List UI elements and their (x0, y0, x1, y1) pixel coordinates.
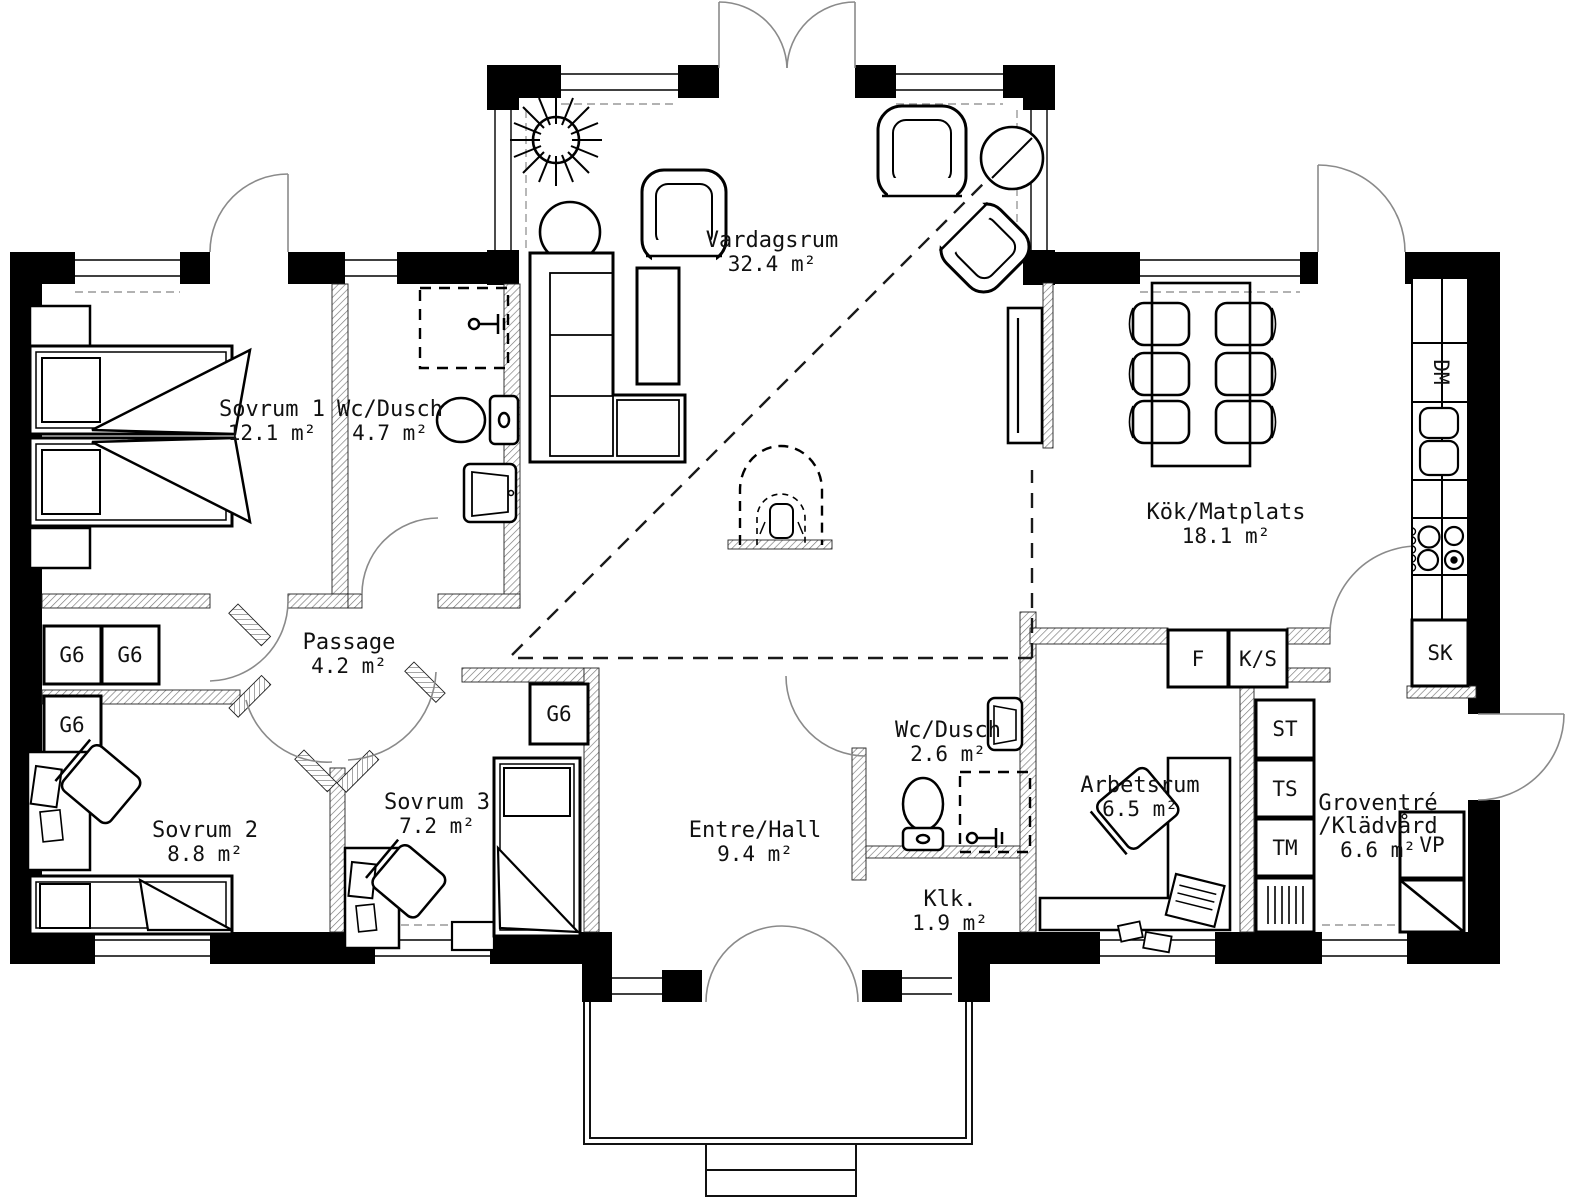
room-area-vardagsrum: 32.4 m² (728, 252, 817, 276)
room-area-wc-dusch2: 2.6 m² (910, 742, 986, 766)
room-area-klk: 1.9 m² (912, 911, 988, 935)
desk-item (1118, 921, 1143, 941)
window (612, 971, 662, 1001)
interior-door-arc (362, 518, 438, 594)
room-area-sovrum3: 7.2 m² (399, 814, 475, 838)
interior-door-arc (210, 601, 288, 681)
window (488, 110, 518, 250)
kitchen-counter (1412, 278, 1468, 620)
toilet (437, 396, 518, 444)
room-area-wc-dusch1: 4.7 m² (352, 421, 428, 445)
sink (464, 464, 516, 522)
window (345, 253, 397, 283)
window (95, 933, 210, 963)
room-label-wc-dusch2: Wc/Dusch (895, 718, 1001, 743)
st-label: ST (1272, 717, 1298, 741)
shower (420, 288, 508, 368)
room-label-klk: Klk. (924, 887, 977, 912)
f-label: F (1192, 647, 1205, 671)
window (75, 253, 180, 283)
vp-lower-unit (1400, 880, 1464, 932)
coffee-table (637, 268, 679, 384)
toilet (903, 778, 943, 850)
entrance-door-arc (782, 926, 858, 1002)
kok-furniture (1008, 278, 1468, 687)
room-area-entre: 9.4 m² (717, 842, 793, 866)
g6-label: G6 (546, 702, 571, 726)
radiator-cabinet (1256, 878, 1314, 932)
room-label-wc-dusch1: Wc/Dusch (337, 397, 443, 422)
window (1140, 253, 1300, 283)
vp-label: VP (1419, 833, 1444, 857)
armchair (878, 106, 966, 204)
bed (30, 876, 232, 934)
nightstand (30, 528, 90, 568)
interior-door-arc (786, 676, 866, 756)
room-label-kok: Kök/Matplats (1147, 500, 1306, 525)
french-door-arc (719, 2, 787, 68)
nightstand (30, 306, 90, 346)
round-side-table (981, 127, 1043, 189)
room-label-groventre: Groventré (1318, 791, 1437, 816)
bed (494, 758, 580, 936)
room-area-sovrum2: 8.8 m² (167, 842, 243, 866)
pillow (42, 358, 100, 422)
sink-basins (1420, 408, 1458, 475)
window (902, 971, 952, 1001)
dm-label: DM (1429, 359, 1453, 384)
armchair (930, 193, 1037, 300)
room-area-kok: 18.1 m² (1182, 524, 1271, 548)
pillow (42, 450, 100, 514)
floor-plan-drawing: Sovrum 1 12.1 m² Wc/Dusch 4.7 m² Vardags… (0, 0, 1589, 1200)
room-label-entre: Entre/Hall (689, 818, 821, 843)
room-label-sovrum3: Sovrum 3 (384, 790, 490, 815)
shower-mixer-icon (967, 828, 1002, 848)
entrance-door-arc (706, 926, 782, 1002)
interior-door-arc (1330, 546, 1418, 634)
side-table (452, 922, 494, 950)
room-label-sovrum2: Sovrum 2 (152, 818, 258, 843)
sovrum1-furniture (30, 306, 250, 568)
room-area-sovrum1: 12.1 m² (228, 421, 317, 445)
room-area-passage: 4.2 m² (311, 654, 387, 678)
sovrum3-furniture (345, 758, 580, 950)
g6-label: G6 (59, 643, 84, 667)
porch (584, 1002, 972, 1196)
room-label-passage: Passage (303, 630, 396, 655)
interior-door-arc (246, 700, 332, 762)
g6-label: G6 (117, 643, 142, 667)
vardagsrum-furniture (510, 94, 1043, 545)
shower-mixer-icon (469, 314, 504, 334)
room-area-groventre: 6.6 m² (1340, 838, 1416, 862)
fireplace (740, 446, 822, 545)
tm-label: TM (1272, 836, 1297, 860)
floor-plan: Sovrum 1 12.1 m² Wc/Dusch 4.7 m² Vardags… (0, 0, 1589, 1200)
ts-label: TS (1272, 777, 1297, 801)
plant (510, 94, 602, 186)
exterior-door-arc (210, 174, 288, 252)
g6-label: G6 (59, 713, 84, 737)
desk-item (1143, 932, 1171, 952)
exterior-door-arc (1478, 714, 1564, 800)
room-area-arbetsrum: 6.5 m² (1102, 797, 1178, 821)
french-door-arc (787, 2, 855, 68)
window (1322, 933, 1407, 963)
sideboard (1008, 308, 1042, 443)
sk-label: SK (1427, 641, 1453, 665)
room-label-arbetsrum: Arbetsrum (1080, 773, 1199, 798)
room-label-sovrum1: Sovrum 1 (219, 397, 325, 422)
room-label-vardagsrum: Vardagsrum (706, 228, 838, 253)
exterior-door-arc (1318, 165, 1405, 252)
window (896, 66, 1003, 97)
ks-label: K/S (1239, 647, 1277, 671)
window (561, 66, 678, 97)
